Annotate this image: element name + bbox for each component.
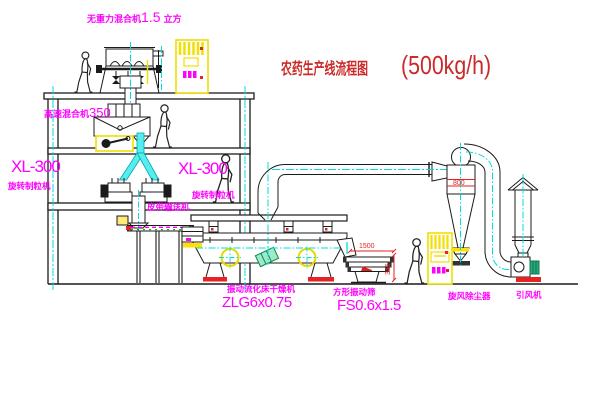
control-cabinet-upper xyxy=(176,40,208,93)
cad-flow-diagram: 农药生产线流程图 (500kg/h) 无重力混合机1.5立方 高速混合机350 … xyxy=(0,0,600,403)
label-high-speed-mixer: 高速混合机350 xyxy=(44,106,111,119)
label-granulator-left-name: 旋转制粒机 xyxy=(8,182,51,191)
label-granulator-left-model: XL-300 xyxy=(11,158,60,175)
dim-screen-height: 345 xyxy=(385,263,392,275)
belt-conveyor xyxy=(117,216,194,283)
dim-screen-length: 1500 xyxy=(359,243,375,250)
exhaust-duct xyxy=(258,162,452,220)
title-capacity: (500kg/h) xyxy=(401,50,491,81)
drawing-title: 农药生产线流程图 (500kg/h) xyxy=(281,50,511,81)
granulator-left xyxy=(101,178,132,202)
label-belt-conveyor: 皮带输送机 xyxy=(147,203,190,212)
label-gravity-mixer: 无重力混合机1.5立方 xyxy=(87,10,182,24)
label-cyclone: 旋风除尘器 xyxy=(448,292,491,301)
title-text: 农药生产线流程图 xyxy=(281,55,368,79)
dim-cyclone-width: 800 xyxy=(453,180,465,187)
person-roof xyxy=(75,52,92,92)
label-granulator-center-model: XL-300 xyxy=(178,160,227,177)
label-dryer-model: ZLG6x0.75 xyxy=(222,295,292,310)
label-screen-name: 方形振动筛 xyxy=(333,288,376,297)
label-fan: 引风机 xyxy=(516,291,542,300)
label-granulator-center-name: 旋转制粒机 xyxy=(192,191,235,200)
induced-draft-fan xyxy=(511,257,541,282)
label-dryer-name: 振动流化床干燥机 xyxy=(227,285,295,294)
fluid-bed-dryer xyxy=(182,162,356,282)
control-cabinet-lower xyxy=(428,233,452,284)
person-ground xyxy=(405,239,424,283)
person-floor2 xyxy=(154,105,172,147)
label-screen-model: FS0.6x1.5 xyxy=(337,298,401,313)
